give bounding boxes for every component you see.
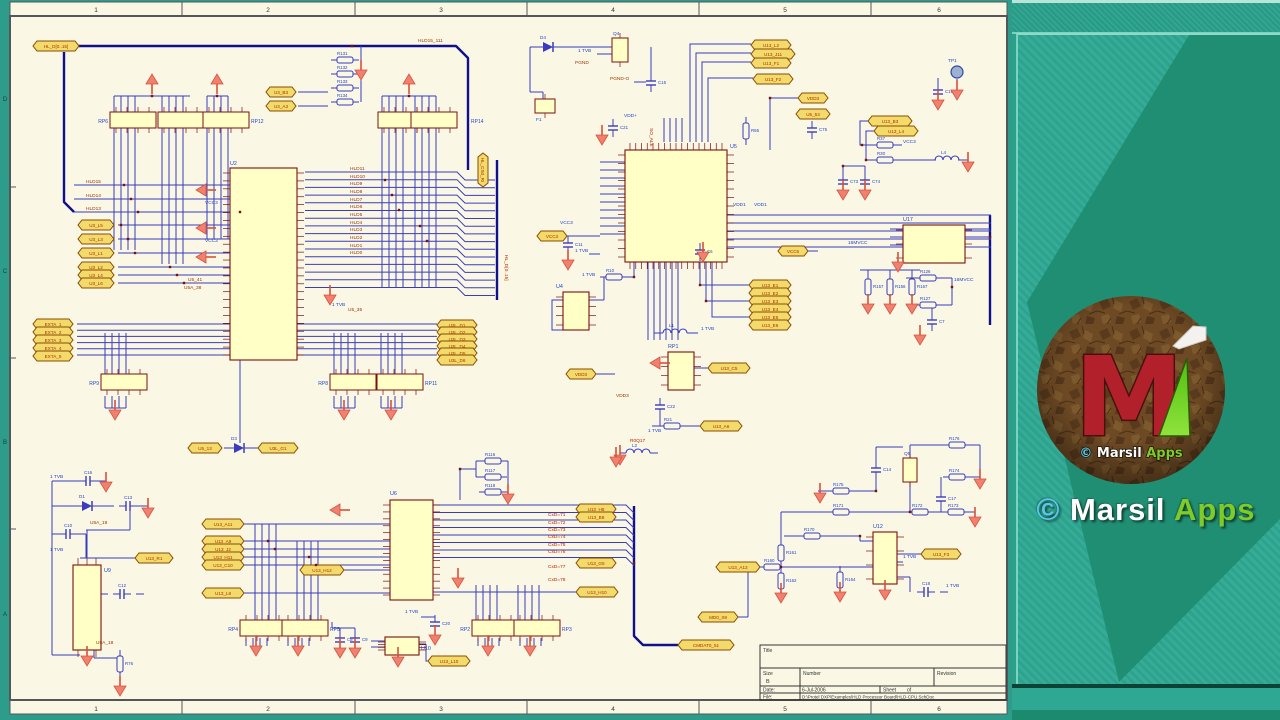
port-U13_B8[interactable]: U13_B8 [576, 512, 616, 522]
svg-text:U9: U9 [104, 568, 111, 574]
svg-text:R116: R116 [485, 452, 496, 457]
svg-text:U13_L2: U13_L2 [763, 43, 780, 48]
svg-text:D1: D1 [79, 494, 85, 499]
port-CMDAT0_51[interactable]: CMDAT0_51 [678, 640, 734, 650]
svg-text:1 TVB: 1 TVB [405, 609, 418, 615]
svg-text:HLD2: HLD2 [350, 235, 363, 241]
port-U13_B3[interactable]: U13_B3 [868, 116, 912, 126]
svg-text:HLD0: HLD0 [350, 250, 363, 256]
svg-text:D3: D3 [231, 436, 237, 441]
svg-text:1 TVB: 1 TVB [648, 428, 661, 434]
svg-text:U3_B3: U3_B3 [274, 90, 288, 95]
svg-text:CMDAT0_51: CMDAT0_51 [693, 643, 720, 648]
svg-text:R131: R131 [337, 51, 348, 56]
ic-U5[interactable]: U5 [618, 143, 737, 269]
svg-text:U13_E1: U13_E1 [762, 283, 779, 288]
svg-text:EXTA_5: EXTA_5 [45, 354, 62, 359]
svg-text:U5_13: U5_13 [198, 446, 212, 451]
svg-text:HLD3: HLD3 [350, 227, 363, 233]
port-VDD3[interactable]: VDD3 [798, 93, 828, 103]
svg-text:VCC5: VCC5 [787, 249, 800, 254]
svg-text:U13_F2: U13_F2 [765, 77, 782, 82]
svg-text:EXTA_2: EXTA_2 [45, 330, 62, 335]
svg-text:R156: R156 [895, 284, 906, 289]
svg-text:R174: R174 [949, 468, 960, 473]
port-VDD3[interactable]: VDD3 [566, 369, 596, 379]
svg-text:HLD10: HLD10 [350, 174, 365, 180]
svg-text:U5A_18: U5A_18 [96, 640, 114, 646]
svg-text:R117: R117 [485, 468, 496, 473]
svg-text:U13_E2: U13_E2 [762, 291, 779, 296]
svg-text:U5A_38: U5A_38 [184, 285, 202, 291]
svg-text:U3_A3: U3_A3 [274, 104, 288, 109]
svg-text:HLD9: HLD9 [350, 181, 363, 187]
schematic-canvas[interactable]: 112233445566DCBAU2U5U17U4U6U10U9U12RP1RP… [0, 0, 1012, 720]
svg-text:R30: R30 [877, 151, 886, 156]
svg-text:R176: R176 [949, 436, 960, 441]
svg-text:16MVCC: 16MVCC [848, 240, 868, 246]
port-U13_F2[interactable]: U13_F2 [753, 74, 793, 84]
port-U3_L6[interactable]: U3_L6 [78, 278, 114, 288]
svg-text:3: 3 [439, 706, 443, 713]
svg-text:Sheet: Sheet [883, 688, 897, 694]
svg-text:VCC3: VCC3 [546, 234, 559, 239]
port-U3_A3[interactable]: U3_A3 [266, 101, 296, 111]
svg-text:U13_H8: U13_H8 [588, 507, 605, 512]
svg-text:RP4: RP4 [228, 627, 238, 633]
svg-text:R127: R127 [920, 296, 931, 301]
svg-text:1 TVB: 1 TVB [50, 474, 63, 480]
svg-text:RP1: RP1 [668, 344, 679, 350]
port-U3_L3[interactable]: U3_L3 [78, 234, 114, 244]
svg-text:RP2: RP2 [460, 627, 470, 633]
svg-text:R170: R170 [804, 527, 815, 532]
svg-text:HLD1: HLD1 [350, 243, 363, 249]
svg-text:U12: U12 [873, 524, 883, 530]
svg-text:VDD3: VDD3 [616, 393, 629, 399]
sheet: 112233445566DCBA [3, 2, 1007, 714]
marsil-apps-logo: M © Marsil Apps [1037, 296, 1225, 484]
svg-text:R171: R171 [833, 503, 844, 508]
svg-text:CxD=72: CxD=72 [548, 520, 566, 526]
svg-text:L1: L1 [669, 323, 675, 328]
port-U13_C10[interactable]: U13_C10 [202, 560, 244, 570]
svg-text:L4: L4 [941, 150, 947, 155]
svg-text:HLD5: HLD5 [350, 212, 363, 218]
svg-text:RP9: RP9 [89, 381, 99, 387]
svg-text:R173: R173 [948, 503, 959, 508]
svg-text:B: B [766, 679, 770, 685]
svg-text:EXTA_3: EXTA_3 [45, 338, 62, 343]
svg-text:4: 4 [611, 7, 615, 14]
port-U13_L10[interactable]: U13_L10 [428, 656, 470, 666]
svg-text:C18: C18 [922, 581, 931, 586]
svg-text:CxD=71: CxD=71 [548, 512, 566, 518]
svg-text:TP1: TP1 [948, 58, 957, 64]
svg-text:U13_E5: U13_E5 [762, 315, 779, 320]
svg-text:RP8: RP8 [318, 381, 328, 387]
svg-text:R118: R118 [485, 483, 496, 488]
svg-text:C17: C17 [948, 496, 957, 501]
svg-text:R21: R21 [664, 417, 673, 422]
svg-text:U13_A13: U13_A13 [728, 565, 748, 570]
svg-text:U3_L6: U3_L6 [89, 281, 103, 286]
svg-text:U5: U5 [730, 144, 737, 150]
svg-text:R10: R10 [606, 268, 615, 273]
svg-text:PGND: PGND [575, 60, 589, 66]
port-U13_F3[interactable]: U13_F3 [921, 549, 961, 559]
panel-bottom-band [1012, 684, 1280, 720]
svg-text:R167: R167 [917, 284, 928, 289]
svg-text:C13: C13 [124, 495, 133, 500]
svg-text:HLD6: HLD6 [350, 204, 363, 210]
svg-text:VDD+: VDD+ [624, 113, 637, 119]
port-U3_L5[interactable]: U3_L5 [78, 220, 114, 230]
svg-text:Size: Size [763, 671, 773, 677]
svg-text:HLD13: HLD13 [86, 206, 101, 212]
svg-text:HL_CS0_RI: HL_CS0_RI [480, 158, 485, 183]
port-VCC3[interactable]: VCC3 [537, 231, 567, 241]
svg-text:U13_F1: U13_F1 [763, 61, 780, 66]
svg-text:C11: C11 [575, 242, 583, 247]
svg-text:6-Jul-2006: 6-Jul-2006 [802, 688, 826, 694]
svg-text:R76: R76 [125, 661, 134, 666]
svg-text:File:: File: [763, 695, 772, 701]
svg-text:VDD1: VDD1 [754, 202, 767, 208]
port-VCC5[interactable]: VCC5 [778, 246, 808, 256]
svg-text:U3_L2: U3_L2 [89, 265, 103, 270]
svg-text:U3L_G1: U3L_G1 [269, 446, 287, 451]
svg-text:U3_L5: U3_L5 [89, 223, 103, 228]
svg-text:U13_C10: U13_C10 [213, 563, 233, 568]
svg-text:5: 5 [783, 7, 787, 14]
port-U13_C5[interactable]: U13_C5 [708, 363, 750, 373]
svg-text:CxD=75: CxD=75 [548, 542, 566, 548]
svg-text:RP14: RP14 [471, 119, 484, 125]
port-U13_A13[interactable]: U13_A13 [716, 562, 760, 572]
svg-text:F1: F1 [536, 117, 542, 123]
svg-text:U5_53: U5_53 [806, 112, 820, 117]
svg-text:D4: D4 [540, 35, 546, 40]
svg-text:1 TVB: 1 TVB [582, 272, 595, 278]
svg-text:U4: U4 [556, 284, 563, 290]
svg-text:HLD4: HLD4 [350, 220, 363, 226]
svg-text:RP6: RP6 [98, 119, 108, 125]
svg-text:U13_F3: U13_F3 [933, 552, 950, 557]
svg-text:VDD1: VDD1 [733, 202, 746, 208]
svg-text:U3_L1: U3_L1 [89, 251, 103, 256]
svg-text:U3L_D6: U3L_D6 [449, 358, 466, 363]
svg-text:U13_J2: U13_J2 [215, 547, 231, 552]
svg-text:U5_35: U5_35 [348, 307, 362, 313]
svg-text:R164: R164 [845, 577, 856, 582]
svg-text:U5A_19: U5A_19 [90, 520, 108, 526]
svg-text:Revision: Revision [937, 671, 956, 677]
brand-caption: © Marsil Apps [1012, 492, 1280, 528]
port-U3L_D6[interactable]: U3L_D6 [437, 355, 477, 365]
svg-text:U13_A6: U13_A6 [713, 424, 730, 429]
svg-text:U13_L10: U13_L10 [440, 659, 459, 664]
svg-text:VCC3: VCC3 [205, 200, 218, 206]
svg-text:D: D [3, 97, 8, 103]
svg-text:R133: R133 [337, 79, 348, 84]
port-U13_R1[interactable]: U13_R1 [135, 553, 173, 563]
svg-text:1 TVB: 1 TVB [578, 48, 591, 54]
svg-text:U13_E3: U13_E3 [762, 299, 779, 304]
svg-text:3: 3 [439, 7, 443, 14]
svg-text:U13_J11: U13_J11 [764, 52, 782, 57]
port-U13_L8[interactable]: U13_L8 [202, 588, 244, 598]
svg-text:VCC3: VCC3 [205, 238, 218, 244]
svg-text:4: 4 [611, 706, 615, 713]
port-MD0_X9[interactable]: MD0_X9 [698, 612, 738, 622]
svg-text:1 TVB: 1 TVB [903, 554, 916, 560]
svg-text:U13_E4: U13_E4 [762, 307, 779, 312]
svg-text:C14: C14 [883, 467, 892, 472]
svg-text:U13_L4: U13_L4 [888, 129, 905, 134]
svg-text:HLD11: HLD11 [350, 166, 365, 172]
svg-text:U6: U6 [390, 491, 397, 497]
port-U13_G5[interactable]: U13_G5 [576, 558, 616, 568]
svg-text:R134: R134 [337, 93, 348, 98]
brand-suffix: Apps [1174, 492, 1256, 527]
svg-text:CxD=78: CxD=78 [548, 577, 566, 583]
svg-text:R37: R37 [877, 136, 886, 141]
screenshot-root: 112233445566DCBAU2U5U17U4U6U10U9U12RP1RP… [0, 0, 1280, 720]
svg-text:RP11: RP11 [425, 381, 437, 387]
svg-text:1 TVB: 1 TVB [50, 547, 63, 553]
svg-text:VCC3: VCC3 [560, 220, 573, 226]
svg-text:1: 1 [94, 7, 98, 14]
svg-text:MD0_X9: MD0_X9 [709, 615, 727, 620]
svg-text:U13_A11: U13_A11 [214, 522, 233, 527]
panel-top-band [1012, 3, 1280, 34]
port-U3_L1[interactable]: U3_L1 [78, 248, 114, 258]
port-U13_E6[interactable]: U13_E6 [749, 320, 791, 330]
svg-text:U13_H11: U13_H11 [213, 555, 233, 560]
svg-text:U13_L8: U13_L8 [215, 591, 232, 596]
port-U13_A6[interactable]: U13_A6 [700, 421, 742, 431]
svg-text:R157: R157 [873, 284, 884, 289]
svg-text:1 TVB: 1 TVB [701, 326, 714, 332]
svg-text:U13_E6: U13_E6 [762, 323, 779, 328]
schematic-workspace: 112233445566DCBAU2U5U17U4U6U10U9U12RP1RP… [0, 0, 1012, 720]
svg-text:C9: C9 [362, 637, 368, 642]
svg-text:CxD=73: CxD=73 [548, 527, 566, 533]
svg-text:VDD3: VDD3 [807, 96, 820, 101]
port-EXTA_5[interactable]: EXTA_5 [33, 351, 73, 361]
svg-text:2: 2 [266, 7, 270, 14]
port-U13_H10[interactable]: U13_H10 [576, 587, 618, 597]
svg-text:U3_L4: U3_L4 [89, 273, 103, 278]
svg-text:HLD8: HLD8 [350, 189, 363, 195]
port-U13_L4[interactable]: U13_L4 [874, 126, 918, 136]
port-U3L_G1[interactable]: U3L_G1 [258, 443, 298, 453]
port-HL_CS0_RI[interactable]: HL_CS0_RI [478, 153, 488, 187]
ic-U6[interactable]: U6 [383, 491, 440, 600]
svg-text:5: 5 [783, 706, 787, 713]
svg-text:Number: Number [803, 671, 821, 677]
svg-text:R0Q17: R0Q17 [630, 438, 646, 444]
svg-text:B: B [3, 440, 7, 446]
svg-text:HL_D[0..15]: HL_D[0..15] [503, 255, 509, 281]
svg-text:R172: R172 [912, 503, 923, 508]
svg-text:R161: R161 [786, 550, 797, 555]
svg-text:1: 1 [94, 706, 98, 713]
svg-text:U3_L3: U3_L3 [89, 237, 103, 242]
svg-text:R126: R126 [920, 269, 931, 274]
svg-text:R175: R175 [833, 482, 844, 487]
copyright-symbol: © [1036, 492, 1060, 527]
svg-text:VCC3: VCC3 [903, 139, 916, 145]
svg-text:Date:: Date: [763, 688, 775, 694]
svg-text:C22: C22 [667, 404, 676, 409]
brand-panel: M © Marsil Apps © Marsil Apps [1012, 0, 1280, 720]
svg-text:C16: C16 [84, 470, 93, 475]
svg-text:C10: C10 [64, 523, 73, 528]
svg-text:C7: C7 [939, 319, 945, 324]
svg-text:6: 6 [937, 706, 941, 713]
svg-text:U17: U17 [903, 217, 913, 223]
svg-text:HLD7: HLD7 [350, 197, 363, 203]
port-U5_13[interactable]: U5_13 [188, 443, 222, 453]
logo-monogram: M [1074, 333, 1183, 461]
svg-text:Title: Title [763, 648, 772, 654]
svg-text:C20: C20 [442, 621, 451, 626]
svg-text:HL_D[0..15]: HL_D[0..15] [44, 44, 69, 49]
brand-name: Marsil [1070, 492, 1166, 527]
svg-text:U10: U10 [421, 646, 431, 652]
svg-text:R160: R160 [764, 558, 775, 563]
svg-text:RP3: RP3 [562, 627, 572, 633]
svg-text:U13_H12: U13_H12 [312, 568, 332, 573]
svg-text:C: C [3, 269, 8, 275]
svg-text:U13_G5: U13_G5 [587, 561, 605, 566]
svg-text:16MVCC: 16MVCC [954, 277, 974, 283]
svg-text:U13_H10: U13_H10 [587, 590, 607, 595]
svg-text:2: 2 [266, 706, 270, 713]
port-U13_F1[interactable]: U13_F1 [751, 58, 791, 68]
svg-text:U13_A9: U13_A9 [215, 539, 232, 544]
svg-text:C21: C21 [620, 125, 629, 130]
logo-caption: © Marsil Apps [1079, 446, 1183, 461]
svg-text:C12: C12 [118, 583, 127, 588]
svg-text:1 TVB: 1 TVB [332, 302, 345, 308]
svg-text:HLD15_111: HLD15_111 [418, 38, 443, 44]
port-U13_A11[interactable]: U13_A11 [202, 519, 244, 529]
svg-text:EXTA_4: EXTA_4 [45, 346, 62, 351]
svg-text:C75: C75 [819, 127, 828, 132]
svg-text:U13_B3: U13_B3 [882, 119, 899, 124]
port-HL_D[0..15][interactable]: HL_D[0..15] [33, 41, 79, 51]
testpoint-TP1[interactable] [951, 66, 963, 78]
svg-text:C74: C74 [872, 179, 881, 184]
svg-text:CxD=77: CxD=77 [548, 564, 566, 570]
svg-text:U2: U2 [230, 161, 237, 167]
svg-text:HLD15: HLD15 [86, 179, 101, 185]
svg-text:PGND-O: PGND-O [610, 76, 629, 82]
svg-text:6: 6 [937, 7, 941, 14]
svg-text:R132: R132 [337, 65, 348, 70]
svg-text:C73: C73 [850, 179, 859, 184]
svg-text:Q4: Q4 [613, 31, 620, 37]
svg-text:D:\Protel DXP\Examples\HLD Pro: D:\Protel DXP\Examples\HLD Processor Boa… [802, 695, 935, 700]
svg-text:1 TVB: 1 TVB [946, 583, 959, 589]
svg-text:EXTA_1: EXTA_1 [45, 322, 62, 327]
svg-text:of: of [907, 688, 912, 694]
svg-text:R65: R65 [751, 128, 760, 133]
svg-text:RP5: RP5 [330, 627, 340, 633]
svg-text:U13_R1: U13_R1 [146, 556, 163, 561]
svg-text:VDD3: VDD3 [575, 372, 588, 377]
svg-text:R162: R162 [786, 578, 797, 583]
svg-text:RP12: RP12 [251, 119, 264, 125]
port-U3_B3[interactable]: U3_B3 [266, 87, 296, 97]
port-U13_H12[interactable]: U13_H12 [300, 565, 344, 575]
svg-text:CxD=76: CxD=76 [548, 549, 566, 555]
svg-text:A: A [3, 612, 7, 618]
ic-U2[interactable]: U2 [223, 161, 304, 360]
svg-text:1 TVB: 1 TVB [575, 248, 588, 254]
svg-text:U5_41: U5_41 [188, 277, 202, 283]
svg-text:U13_B8: U13_B8 [588, 515, 605, 520]
svg-text:HLD14: HLD14 [86, 193, 101, 199]
svg-text:C15: C15 [658, 80, 667, 85]
svg-text:Q5: Q5 [904, 451, 911, 457]
port-U5_53[interactable]: U5_53 [796, 109, 830, 119]
svg-text:SO_ALE: SO_ALE [648, 128, 654, 147]
svg-text:CxD=74: CxD=74 [548, 534, 566, 540]
svg-text:U13_C5: U13_C5 [721, 366, 738, 371]
